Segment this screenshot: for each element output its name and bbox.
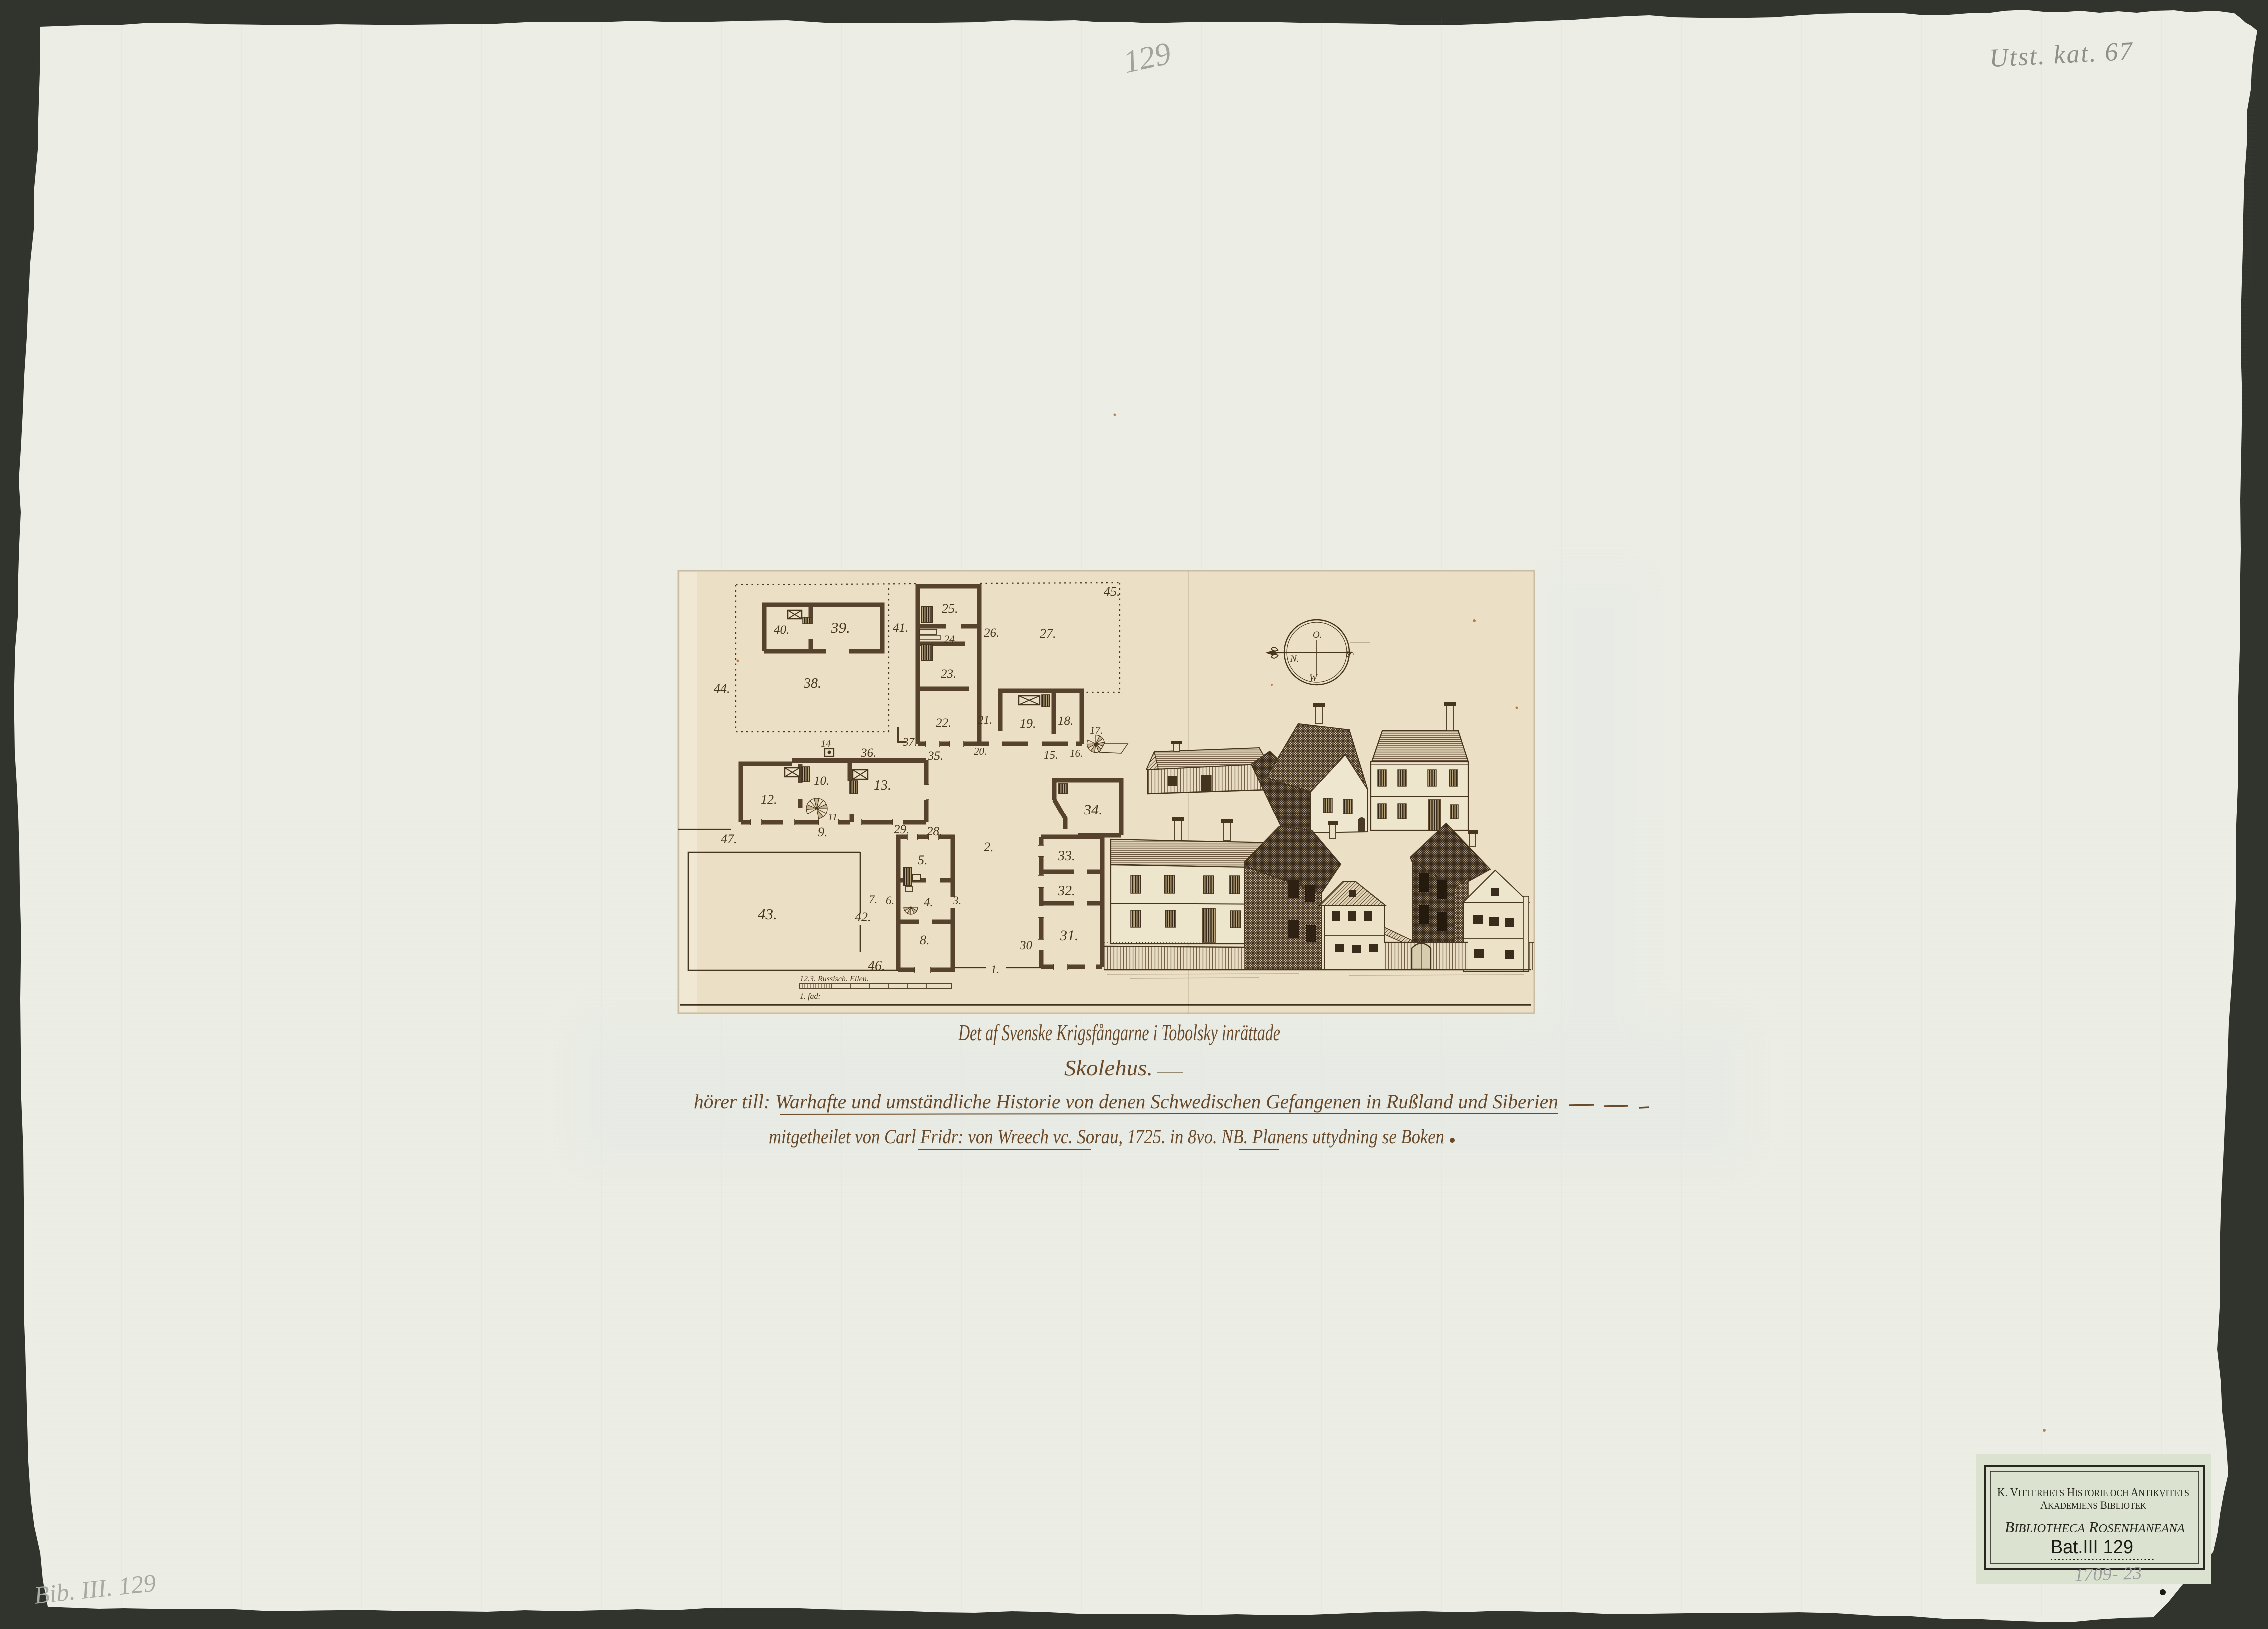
svg-text:17.: 17. [1090,724,1103,736]
svg-text:S.: S. [1345,651,1355,658]
svg-text:Skolehus.: Skolehus. [1064,1056,1153,1080]
svg-text:N.: N. [1290,654,1299,664]
svg-text:31.: 31. [1059,927,1079,944]
svg-text:36.: 36. [860,746,876,760]
svg-text:3.: 3. [952,894,961,907]
svg-text:9.: 9. [818,825,828,839]
svg-text:W: W [1309,673,1318,683]
svg-text:23.: 23. [941,667,956,681]
svg-text:Bat.III 129: Bat.III 129 [2051,1537,2133,1558]
svg-text:15.: 15. [1044,749,1058,761]
svg-text:K. VITTERHETS HISTORIE OCH ANT: K. VITTERHETS HISTORIE OCH ANTIKVITETS [1997,1486,2189,1499]
svg-text:12.: 12. [761,792,777,807]
svg-text:43.: 43. [758,905,777,923]
svg-text:33.: 33. [1057,848,1075,864]
svg-text:40.: 40. [774,623,789,637]
svg-text:42.: 42. [855,910,871,924]
svg-text:24.: 24. [944,633,958,645]
svg-text:AKADEMIENS BIBLIOTEK: AKADEMIENS BIBLIOTEK [2040,1499,2146,1511]
svg-text:11.: 11. [828,811,840,823]
svg-text:38.: 38. [803,676,821,691]
svg-text:29.: 29. [894,823,909,836]
svg-text:1. fad:: 1. fad: [800,992,821,1001]
svg-text:21.: 21. [978,714,992,726]
svg-text:27.: 27. [1040,626,1056,641]
svg-text:8.: 8. [920,933,930,947]
svg-text:7.: 7. [869,893,877,906]
svg-text:26.: 26. [984,626,999,640]
svg-text:mitgetheilet von Carl Fridr: v: mitgetheilet von Carl Fridr: von Wreech … [769,1125,1444,1148]
svg-text:47.: 47. [721,832,737,846]
svg-text:2.: 2. [984,840,994,854]
svg-text:35.: 35. [927,749,943,763]
svg-text:1.: 1. [991,963,999,976]
svg-text:13.: 13. [874,778,891,793]
svg-text:6.: 6. [886,894,894,907]
svg-text:16.: 16. [1070,747,1083,759]
svg-text:20.: 20. [974,745,987,757]
svg-text:45.: 45. [1104,584,1120,599]
svg-text:46.: 46. [868,958,885,974]
svg-text:14: 14 [821,738,831,749]
svg-text:10.: 10. [814,774,829,788]
svg-text:18.: 18. [1058,714,1073,728]
svg-text:37.: 37. [902,736,917,748]
svg-text:hörer till: Warhafte und umstä: hörer till: Warhafte und umständliche Hi… [694,1090,1558,1113]
svg-text:28.: 28. [927,825,942,838]
svg-text:1709- 23: 1709- 23 [2074,1563,2142,1585]
svg-text:Det af Svenske Krigsfångarne i: Det af Svenske Krigsfångarne i Tobolsky … [958,1020,1280,1045]
svg-text:41.: 41. [893,621,908,635]
svg-text:32.: 32. [1057,883,1075,899]
svg-text:25.: 25. [942,601,958,616]
svg-text:12.3. Russisch. Ellen.: 12.3. Russisch. Ellen. [800,975,869,983]
svg-text:5.: 5. [918,853,928,867]
svg-text:O.: O. [1313,630,1322,640]
svg-text:22.: 22. [936,716,951,730]
svg-text:30: 30 [1019,939,1033,952]
svg-text:39.: 39. [830,619,850,636]
svg-text:19.: 19. [1020,716,1036,731]
svg-text:44.: 44. [714,681,730,696]
svg-text:34.: 34. [1083,802,1103,818]
svg-text:4.: 4. [924,896,933,909]
